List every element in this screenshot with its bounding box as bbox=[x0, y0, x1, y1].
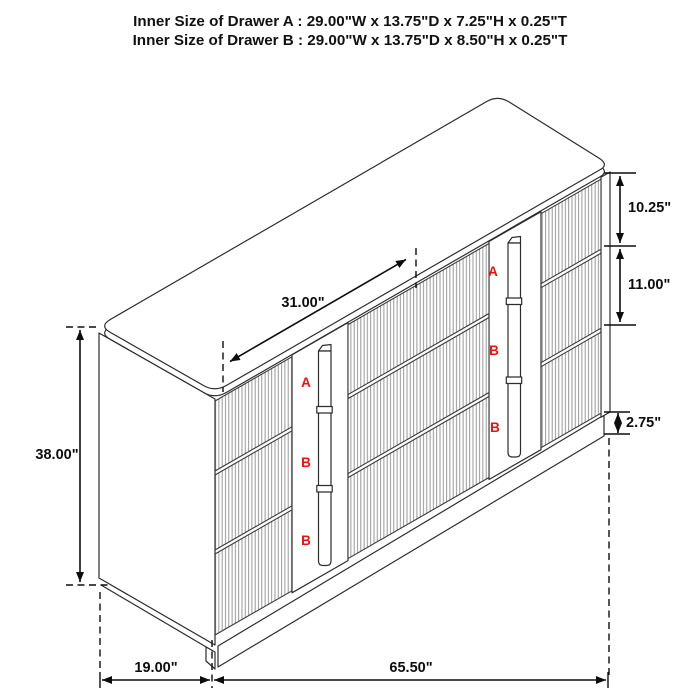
cabinet-drawing: A B B A B B bbox=[99, 98, 610, 669]
furniture-dimension-diagram: A B B A B B 38.00" 31.00" 10.25" 11.00" bbox=[0, 0, 700, 700]
handle-joint bbox=[317, 486, 332, 493]
handle-bar-body bbox=[508, 243, 521, 457]
handle-bar-body bbox=[319, 351, 332, 566]
dim-label-width: 65.50" bbox=[389, 660, 432, 676]
drawer-label-b: B bbox=[301, 455, 311, 470]
diagram-canvas: A B B A B B 38.00" 31.00" 10.25" 11.00" bbox=[0, 0, 700, 700]
drawer-label-b: B bbox=[301, 533, 311, 548]
title-line-2: Inner Size of Drawer B : 29.00"W x 13.75… bbox=[133, 32, 569, 49]
left-handle-bar bbox=[317, 345, 332, 566]
handle-joint bbox=[506, 377, 521, 384]
handle-joint bbox=[317, 407, 332, 414]
dim-label-drawer-b-height: 11.00" bbox=[628, 277, 670, 293]
handle-joint bbox=[506, 298, 521, 305]
drawer-label-a: A bbox=[488, 264, 498, 279]
dim-label-drawer-a-height: 10.25" bbox=[628, 200, 671, 216]
drawer-label-a: A bbox=[301, 375, 311, 390]
dimension-drawer-heights: 10.25" 11.00" 2.75" bbox=[604, 173, 671, 676]
drawer-fronts-right-section bbox=[541, 179, 601, 448]
title-block: Inner Size of Drawer A : 29.00"W x 13.75… bbox=[133, 13, 569, 49]
front-left-foot bbox=[206, 647, 215, 669]
drawer-label-b: B bbox=[489, 343, 499, 358]
right-handle-bar bbox=[506, 237, 521, 458]
drawer-fronts-left-section bbox=[215, 357, 292, 635]
dimension-overall-height: 38.00" bbox=[35, 327, 108, 585]
drawer-label-b: B bbox=[490, 420, 500, 435]
dim-label-base-height: 2.75" bbox=[626, 415, 661, 431]
front-right-corner-strip bbox=[601, 172, 610, 417]
dim-label-height: 38.00" bbox=[35, 447, 78, 463]
dim-label-depth: 19.00" bbox=[134, 660, 177, 676]
title-line-1: Inner Size of Drawer A : 29.00"W x 13.75… bbox=[133, 13, 567, 30]
dim-label-top-width: 31.00" bbox=[281, 295, 324, 311]
